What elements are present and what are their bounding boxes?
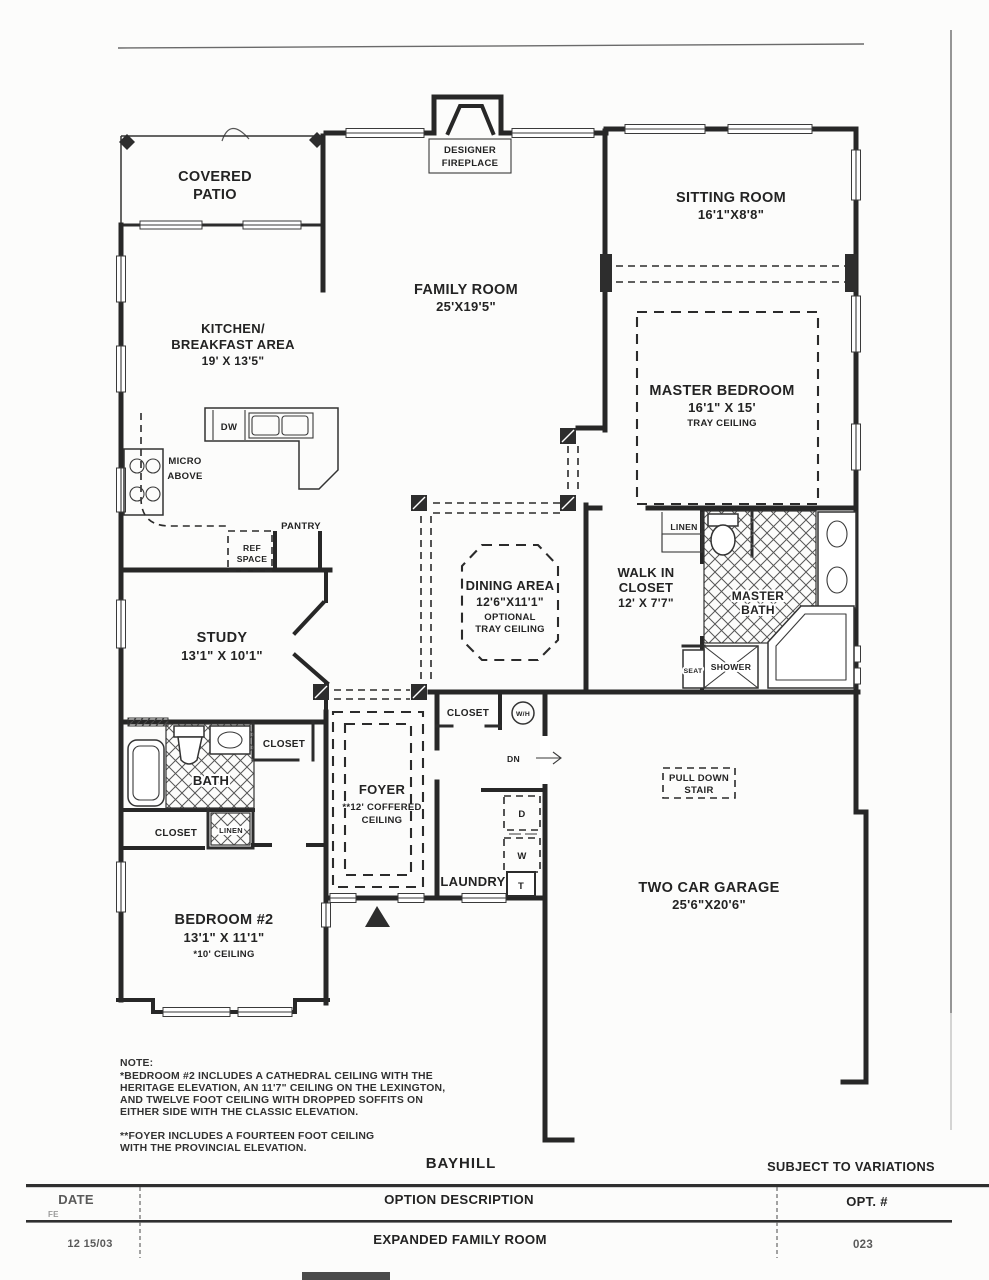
label-ref-space: REF	[243, 543, 261, 553]
svg-text:WITH THE PROVINCIAL ELEVATION.: WITH THE PROVINCIAL ELEVATION.	[120, 1143, 307, 1154]
window	[163, 1008, 230, 1017]
row-option: EXPANDED FAMILY ROOM	[373, 1232, 547, 1247]
label-laundry-tub: T	[518, 881, 524, 892]
column	[560, 428, 576, 444]
window	[117, 256, 126, 302]
column	[313, 684, 329, 700]
svg-text:TRAY CEILING: TRAY CEILING	[475, 624, 545, 635]
window	[728, 125, 812, 134]
svg-text:13'1" X 10'1": 13'1" X 10'1"	[181, 648, 263, 663]
header-date: DATE	[58, 1192, 94, 1207]
label-linen-hall: LINEN	[219, 826, 243, 835]
svg-text:*BEDROOM #2 INCLUDES A CATHEDR: *BEDROOM #2 INCLUDES A CATHEDRAL CEILING…	[120, 1071, 433, 1082]
linen-master-box	[662, 512, 702, 552]
master-vanity	[818, 512, 856, 608]
label-laundry: LAUNDRY	[440, 874, 505, 889]
vanity-sink	[210, 726, 250, 754]
foyer-coffered-inner	[345, 724, 411, 875]
svg-text:19' X 13'5": 19' X 13'5"	[202, 354, 265, 368]
label-dryer: D	[518, 809, 525, 820]
label-shower: SHOWER	[711, 662, 752, 672]
window	[243, 221, 301, 229]
svg-text:EITHER SIDE WITH THE CLASSIC E: EITHER SIDE WITH THE CLASSIC ELEVATION.	[120, 1107, 358, 1118]
svg-text:STAIR: STAIR	[684, 785, 713, 796]
window	[346, 129, 424, 138]
label-micro: MICRO	[168, 456, 201, 467]
label-covered-patio: COVERED	[178, 169, 252, 185]
window	[117, 346, 126, 392]
label-study: STUDY	[197, 630, 248, 646]
svg-text:BATH: BATH	[741, 603, 775, 617]
column	[411, 495, 427, 511]
kitchen-island	[205, 408, 338, 489]
label-garage: TWO CAR GARAGE	[638, 880, 779, 896]
svg-text:AND TWELVE FOOT CEILING WITH D: AND TWELVE FOOT CEILING WITH DROPPED SOF…	[120, 1095, 423, 1106]
svg-text:16'1"X8'8": 16'1"X8'8"	[698, 207, 764, 222]
svg-text:PATIO: PATIO	[193, 187, 237, 203]
scan-artifact	[222, 128, 249, 141]
svg-text:HERITAGE ELEVATION, AN 11'7" C: HERITAGE ELEVATION, AN 11'7" CEILING ON …	[120, 1083, 445, 1094]
svg-text:SPACE: SPACE	[237, 554, 267, 564]
window	[462, 894, 506, 903]
window	[117, 600, 126, 648]
note-block: NOTE: *BEDROOM #2 INCLUDES A CATHEDRAL C…	[120, 1058, 445, 1154]
label-family-room: FAMILY ROOM	[414, 282, 518, 298]
window	[238, 1008, 292, 1017]
svg-text:*10' CEILING: *10' CEILING	[193, 949, 254, 960]
label-master-bath: MASTER	[732, 589, 784, 603]
label-pantry: PANTRY	[281, 521, 321, 532]
title-block: BAYHILL SUBJECT TO VARIATIONS DATE OPTIO…	[26, 1155, 989, 1280]
label-closet-hall: CLOSET	[263, 739, 305, 750]
svg-text:12' X 7'7": 12' X 7'7"	[618, 596, 674, 610]
svg-text:25'6"X20'6": 25'6"X20'6"	[672, 897, 746, 912]
label-dining-area: DINING AREA	[466, 578, 555, 593]
note-heading: NOTE:	[120, 1058, 153, 1069]
label-linen-master: LINEN	[670, 522, 697, 532]
door-gap	[540, 736, 550, 784]
window	[852, 296, 861, 352]
toilet	[174, 726, 204, 737]
front-door-marker	[365, 906, 390, 927]
svg-text:OPTIONAL: OPTIONAL	[484, 612, 535, 623]
label-hall-bath: BATH	[193, 773, 229, 788]
svg-text:**12' COFFERED: **12' COFFERED	[342, 802, 421, 813]
label-washer: W	[517, 851, 526, 862]
window	[117, 862, 126, 912]
designer-fireplace: DESIGNER FIREPLACE	[429, 97, 511, 173]
label-closet-bedroom2: CLOSET	[155, 828, 197, 839]
svg-text:FIREPLACE: FIREPLACE	[442, 158, 499, 169]
label-walk-in-closet: WALK IN	[618, 565, 675, 580]
window	[852, 424, 861, 470]
svg-text:**FOYER INCLUDES A FOURTEEN FO: **FOYER INCLUDES A FOURTEEN FOOT CEILING	[120, 1131, 374, 1142]
row-opt-no: 023	[853, 1239, 873, 1251]
floor-plan-sheet: DESIGNER FIREPLACE	[0, 0, 989, 1280]
dining-cased-opening	[421, 503, 562, 684]
divider-stub	[600, 254, 612, 292]
label-water-heater: W/H	[516, 711, 530, 718]
label-seat: SEAT	[684, 668, 703, 675]
sitting-master-opening	[616, 266, 846, 282]
label-closet-entry: CLOSET	[447, 708, 489, 719]
range	[124, 449, 163, 515]
label-pull-down: PULL DOWN	[669, 773, 729, 784]
svg-text:BREAKFAST AREA: BREAKFAST AREA	[171, 337, 295, 352]
row-date: 12 15/03	[67, 1238, 112, 1250]
window	[330, 894, 356, 903]
label-foyer: FOYER	[359, 782, 406, 797]
fireplace-label: DESIGNER	[444, 145, 496, 156]
window	[512, 129, 594, 138]
margin-mark: FE	[48, 1210, 59, 1219]
scan-bar	[302, 1272, 390, 1280]
label-kitchen: KITCHEN/	[201, 321, 265, 336]
svg-text:16'1" X 15': 16'1" X 15'	[688, 400, 756, 415]
label-dw: DW	[221, 422, 237, 433]
title-rule-top	[26, 1184, 989, 1187]
svg-text:CEILING: CEILING	[362, 815, 403, 826]
svg-text:12'6"X11'1": 12'6"X11'1"	[476, 595, 544, 609]
window	[140, 221, 202, 229]
kitchen-sink	[249, 413, 313, 438]
plan-name: BAYHILL	[426, 1155, 497, 1172]
kitchen-counter-dashed	[141, 413, 227, 526]
header-opt-no: OPT. #	[846, 1194, 888, 1209]
header-option: OPTION DESCRIPTION	[384, 1192, 534, 1207]
svg-text:CLOSET: CLOSET	[619, 580, 674, 595]
disclaimer: SUBJECT TO VARIATIONS	[767, 1159, 935, 1174]
laundry-fixtures	[504, 702, 561, 896]
window	[625, 125, 705, 134]
label-bedroom2: BEDROOM #2	[175, 912, 274, 928]
label-sitting-room: SITTING ROOM	[676, 190, 786, 206]
label-dn: DN	[507, 754, 520, 764]
window	[322, 903, 331, 927]
column	[560, 495, 576, 511]
column	[411, 684, 427, 700]
foyer-coffered-outer	[333, 712, 423, 887]
toilet	[708, 514, 738, 526]
svg-text:ABOVE: ABOVE	[167, 471, 202, 482]
floor-plan-drawing: DESIGNER FIREPLACE	[0, 0, 989, 1280]
divider-stub	[845, 254, 857, 292]
pantry-walls	[275, 533, 320, 570]
window	[398, 894, 424, 903]
room-labels: COVERED PATIO FAMILY ROOM 25'X19'5" SITT…	[171, 169, 794, 960]
family-master-opening	[568, 446, 578, 494]
title-rule-mid	[26, 1220, 952, 1223]
wall-garage-right	[843, 692, 866, 1082]
bath-window-hatch	[128, 718, 168, 726]
window	[852, 150, 861, 200]
svg-text:TRAY CEILING: TRAY CEILING	[687, 418, 757, 429]
svg-text:25'X19'5": 25'X19'5"	[436, 299, 496, 314]
foyer-cased-opening	[334, 690, 410, 699]
label-master-bedroom: MASTER BEDROOM	[649, 383, 794, 399]
svg-text:13'1" X 11'1": 13'1" X 11'1"	[184, 930, 265, 945]
